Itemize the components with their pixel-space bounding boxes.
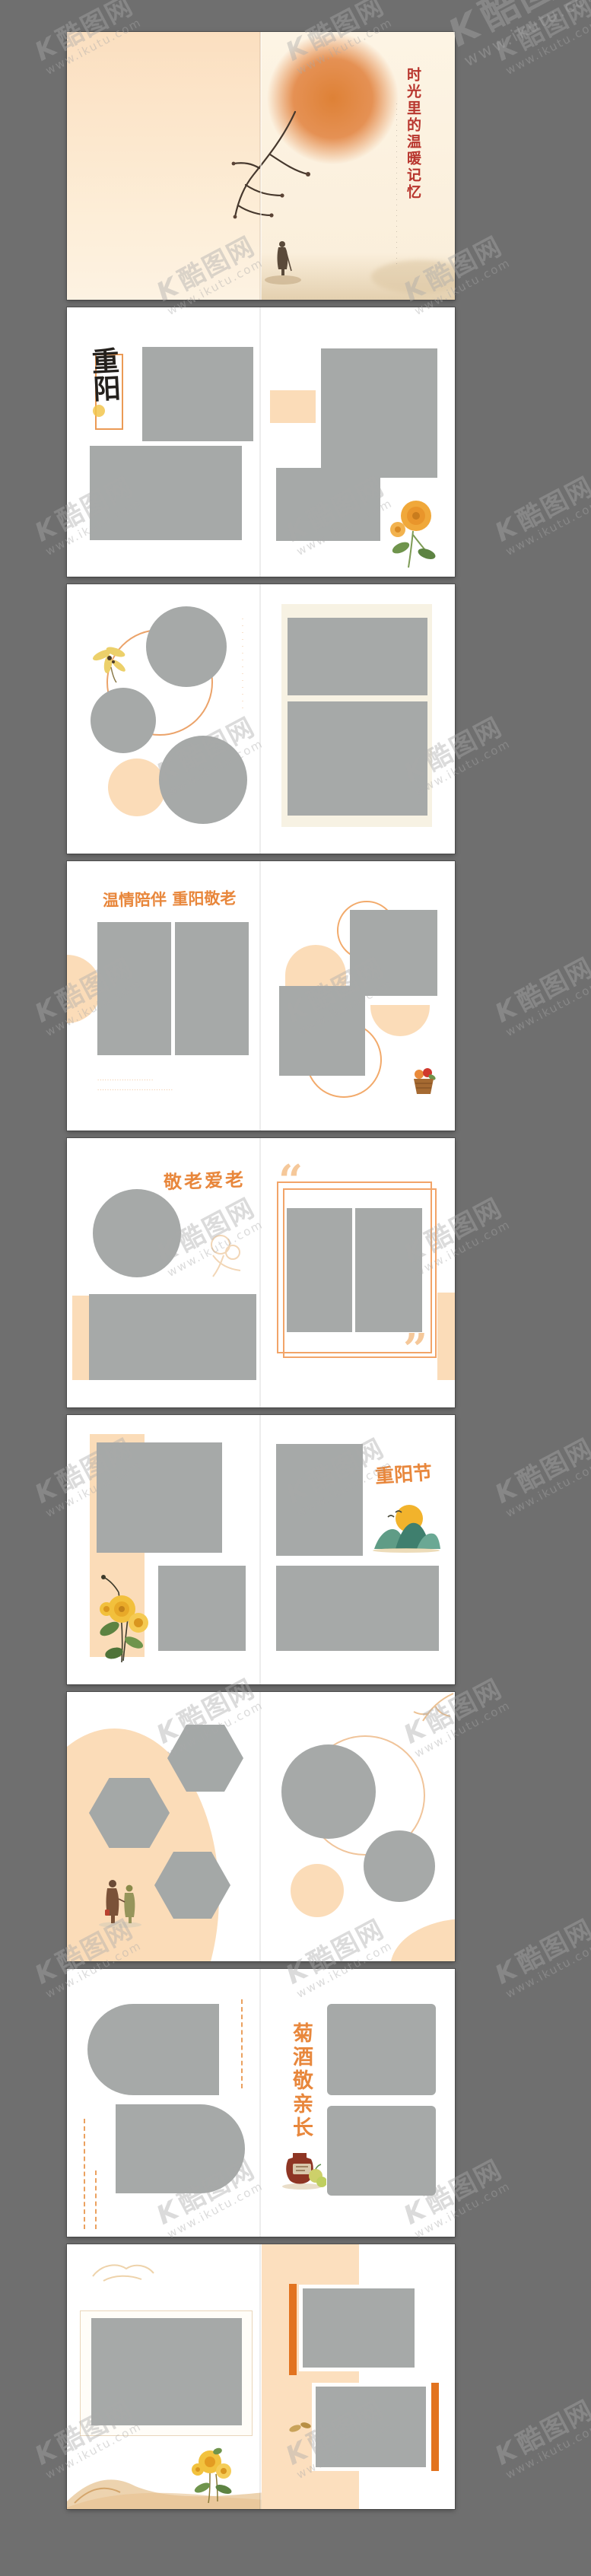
spine-divider [259,1692,262,1961]
elderly-person-icon [263,237,303,286]
branch-sketch-icon [400,1692,455,1744]
spine-divider [259,307,262,577]
leaf-sprig-icon [288,2418,313,2438]
flower-bouquet-icon [187,2441,237,2504]
spread-4[interactable]: 温情陪伴 重阳敬老 ······················· ······… [67,861,455,1131]
photo-placeholder [159,736,247,824]
cover-subtitle: ······························· [394,102,399,201]
cloud-sketch-icon [88,2256,158,2287]
peach-strip [437,1293,455,1380]
orange-bar [289,2284,297,2375]
peach-band [262,2244,359,2509]
template-preview-canvas: 时光里的温暖记忆 ·······························… [0,0,591,2576]
watermark-tile: K酷图网www.ikutu.com [468,1903,591,2014]
dashed-line [84,2119,85,2229]
caption-line: ······················· [97,1078,166,1083]
watermark-tile: K酷图网www.ikutu.com [468,1423,591,1533]
wine-jar-icon [278,2142,326,2190]
spine-divider [259,1969,262,2237]
photo-placeholder [281,1744,376,1839]
photo-placeholder [93,1189,181,1277]
orchid-flower-icon [90,641,128,683]
photo-placeholder [142,347,253,441]
spread6-heading: 重阳节 [374,1457,444,1489]
photo-placeholder [97,922,171,1055]
photo-placeholder [158,1566,246,1651]
peach-half-circle [67,955,101,1023]
calligraphy-title: 重阳 [83,346,127,440]
dashed-line [95,2171,97,2229]
photo-placeholder [97,1442,222,1553]
caption-line: ······························· [97,1088,211,1093]
chrysanthemum-icon [383,493,443,569]
photo-placeholder [288,618,427,695]
mountain-sun-icon [370,1499,443,1554]
spread-1-cover[interactable]: 时光里的温暖记忆 ······························· [67,32,455,300]
peach-corner-blob [390,1919,455,1961]
photo-placeholder [364,1830,435,1902]
spread8-heading: 菊酒敬亲长 [286,2022,316,2150]
photo-placeholder [303,2288,415,2368]
peach-circle [291,1864,344,1917]
photo-placeholder [350,910,437,996]
photo-placeholder [90,446,242,540]
photo-placeholder [89,1294,256,1380]
spine-divider [259,861,262,1131]
watermark-tile: K酷图网www.ikutu.com [468,942,591,1052]
peach-circle [108,758,166,816]
spread-7[interactable] [67,1692,455,1961]
spread5-heading: 敬老爱老 [163,1164,262,1194]
photo-placeholder [321,348,437,478]
peach-arch-down [370,1005,430,1036]
plum-branch-icon [223,110,326,247]
photo-placeholder [288,701,427,816]
photo-placeholder [279,986,365,1076]
spread-6[interactable]: 重阳节 [67,1415,455,1684]
quote-close-mark: ” [403,1327,427,1372]
photo-placeholder [91,2318,242,2425]
spread-2[interactable]: 重阳 [67,307,455,577]
quote-open-mark: “ [278,1158,303,1204]
photo-placeholder [327,2106,436,2196]
orange-bar [431,2383,439,2471]
peach-block [270,390,316,423]
dashed-line [241,1999,243,2088]
cover-title: 时光里的温暖记忆 [403,67,424,215]
sketch-flower-icon [198,1225,253,1280]
spine-divider [259,584,262,854]
photo-placeholder [91,688,156,753]
spine-divider [259,1415,262,1684]
photo-placeholder [175,922,249,1055]
spread-9[interactable] [67,2244,455,2509]
spread-5[interactable]: 敬老爱老 “ ” [67,1138,455,1407]
photo-placeholder [146,606,227,687]
watermark-tile: K酷图网www.ikutu.com [468,461,591,571]
elderly-couple-icon [96,1876,145,1929]
photo-placeholder [287,1208,352,1332]
photo-placeholder [327,2004,436,2095]
watermark-tile: K酷图网www.ikutu.com [468,0,591,90]
spread-3[interactable]: ···················· [67,584,455,854]
photo-placeholder [316,2387,426,2467]
spread4-heading: 温情陪伴 重阳敬老 [103,886,255,911]
side-caption: ···················· [240,616,245,709]
photo-placeholder [276,1444,363,1556]
gift-basket-icon [411,1065,437,1097]
watermark-tile: K酷图网www.ikutu.com [468,2384,591,2495]
photo-placeholder [116,2104,245,2193]
photo-placeholder [276,468,380,541]
spread-8[interactable]: 菊酒敬亲长 [67,1969,455,2237]
photo-placeholder [87,2004,219,2095]
photo-placeholder [276,1566,439,1651]
photo-placeholder [355,1208,422,1332]
chrysanthemum-bouquet-icon [96,1569,154,1665]
